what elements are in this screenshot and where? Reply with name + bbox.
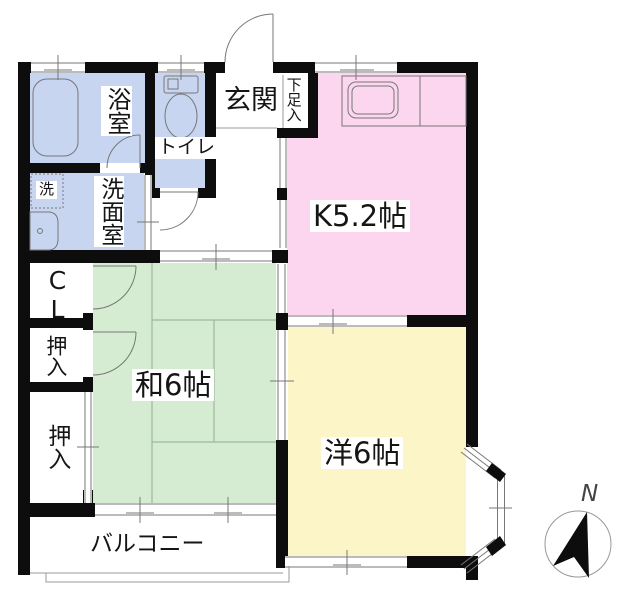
oshiire-upper-door (93, 332, 136, 375)
closet-label: CL (44, 266, 70, 324)
sliding-door-washroom-hall (137, 175, 159, 250)
bay-window (461, 444, 512, 573)
sliding-door-oshiire-lower (77, 392, 99, 503)
window-western-balcony (285, 550, 407, 575)
compass-icon (545, 511, 611, 578)
toilet-label: トイレ (155, 137, 218, 159)
window-bath (31, 55, 85, 80)
bath-label: 浴室 (101, 86, 132, 136)
vanity-sink-icon (30, 212, 58, 250)
floor-plan: 浴室 洗面室 洗 トイレ 玄関 下足入 CL 押入 押入 和6帖 K5.2帖 洋… (0, 0, 640, 605)
toilet-icon (164, 76, 198, 138)
sliding-door-kitchen-western (288, 309, 407, 334)
window-symbols (31, 55, 407, 575)
entrance-door (225, 14, 273, 62)
laundry-label: 洗 (36, 181, 57, 199)
balcony-label: バルコニー (90, 533, 205, 557)
japanese-room-label: 和6帖 (132, 369, 214, 401)
kitchen-label: K5.2帖 (310, 200, 410, 232)
sliding-door-hall-japanese (160, 244, 272, 270)
sliding-door-hall-kitchen-upper (279, 138, 287, 188)
sliding-door-hall-kitchen-lower (279, 200, 287, 248)
western-room-label: 洋6帖 (321, 437, 403, 469)
kitchen-counter-icon (342, 76, 466, 126)
window-japanese-balcony (95, 497, 276, 523)
plan-linework (0, 0, 640, 605)
balcony-outline (30, 566, 289, 582)
washroom-label: 洗面室 (94, 176, 124, 247)
sliding-door-japanese-western (270, 330, 294, 440)
sliding-door-japanese-kitchen (277, 264, 286, 313)
bathtub-icon (33, 79, 78, 156)
entrance-label: 玄関 (224, 87, 278, 115)
closet-door (93, 266, 136, 309)
oshiire-upper-label: 押入 (44, 335, 66, 377)
oshiire-lower-label: 押入 (44, 424, 68, 470)
compass-north-label: N (581, 483, 598, 507)
shoe-cabinet-label: 下足入 (285, 77, 301, 122)
